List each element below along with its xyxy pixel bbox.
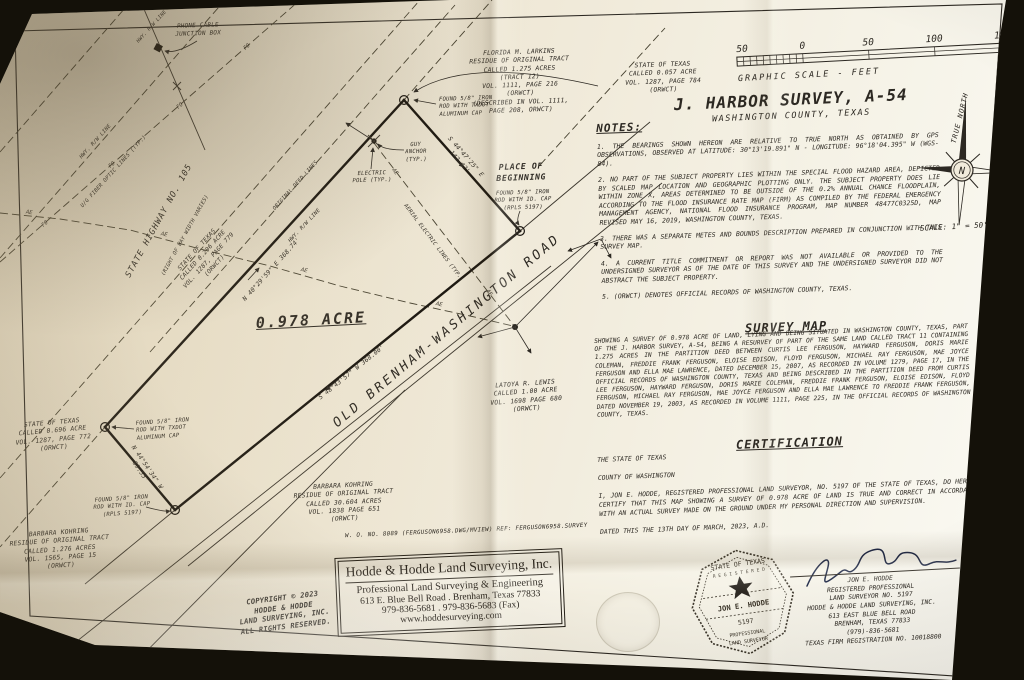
found-rod-west-label: FOUND 5/8" IRON ROD WITH TXDOT ALUMINUM …	[136, 417, 191, 443]
guy-anchor-label: GUY ANCHOR (TYP.)	[405, 142, 427, 165]
survey-paper-sheet: FO FO FO FO AE AE AE AE AE AE	[0, 0, 1024, 680]
company-title-box: Hodde & Hodde Land Surveying, Inc. Profe…	[334, 548, 565, 637]
note-2: 2. NO PART OF THE SUBJECT PROPERTY LIES …	[598, 164, 942, 227]
cert-text: I, JON E. HODDE, REGISTERED PROFESSIONAL…	[598, 477, 979, 518]
survey-photo: FO FO FO FO AE AE AE AE AE AE	[0, 0, 1024, 680]
svg-text:FO: FO	[176, 101, 185, 110]
kohring-small-tract-label: BARBARA KOHRING RESIDUE OF ORIGINAL TRAC…	[9, 526, 111, 574]
svg-text:100: 100	[925, 33, 943, 45]
embossed-seal-mark	[596, 592, 660, 652]
note-5: 5. (ORWCT) DENOTES OFFICIAL RECORDS OF W…	[602, 281, 944, 301]
note-3: 3. THERE WAS A SEPARATE METES AND BOUNDS…	[600, 223, 942, 252]
svg-text:5197: 5197	[737, 617, 754, 627]
found-rod-south-label: FOUND 5/8" IRON ROD WITH ID. CAP (RPLS 5…	[93, 494, 151, 520]
notes-section: NOTES: 1. THE BEARINGS SHOWN HEREON ARE …	[596, 110, 944, 309]
electric-pole-label: ELECTRIC POLE (TYP.)	[352, 170, 392, 186]
state-0696-label: STATE OF TEXAS CALLED 0.696 ACRE VOL. 12…	[14, 416, 92, 456]
state-0057-label: STATE OF TEXAS CALLED 0.057 ACRE VOL. 12…	[625, 60, 702, 96]
svg-text:AE: AE	[299, 267, 309, 275]
svg-text:AE: AE	[434, 301, 443, 309]
svg-text:50: 50	[862, 37, 874, 49]
note-1: 1. THE BEARINGS SHOWN HEREON ARE RELATIV…	[597, 131, 940, 168]
pob-rod-label: FOUND 5/8" IRON ROD WITH ID. CAP (RPLS 5…	[494, 189, 552, 213]
svg-text:150: 150	[994, 30, 1012, 42]
surveyor-info-block: JON E. HODDE REGISTERED PROFESSIONAL LAN…	[768, 571, 975, 651]
svg-text:FO: FO	[41, 219, 50, 228]
kohring-large-tract-label: BARBARA KOHRING RESIDUE OF ORIGINAL TRAC…	[293, 480, 395, 527]
place-of-beginning-label: PLACE OF BEGINNING	[496, 160, 546, 183]
svg-text:AE: AE	[24, 209, 33, 216]
junction-box-symbol	[153, 43, 162, 52]
svg-text:50: 50	[736, 44, 748, 56]
note-4: 4. A CURRENT TITLE COMMITMENT OR REPORT …	[601, 248, 944, 285]
latoya-lewis-label: LATOYA R. LEWIS CALLED 1.00 ACRE VOL. 16…	[489, 378, 563, 416]
phone-junction-label: PHONE CABLE JUNCTION BOX	[175, 21, 221, 38]
svg-text:0: 0	[799, 41, 806, 52]
certification-block: THE STATE OF TEXAS COUNTY OF WASHINGTON …	[597, 441, 980, 537]
seal-star-icon	[727, 575, 754, 600]
found-rod-north-label: FOUND 5/8" IRON ROD WITH TXDOT ALUMINUM …	[439, 95, 493, 119]
road-se-edge	[188, 183, 662, 566]
svg-text:FO: FO	[243, 42, 252, 51]
survey-map-text: SHOWING A SURVEY OF 0.978 ACRE OF LAND, …	[594, 323, 971, 420]
